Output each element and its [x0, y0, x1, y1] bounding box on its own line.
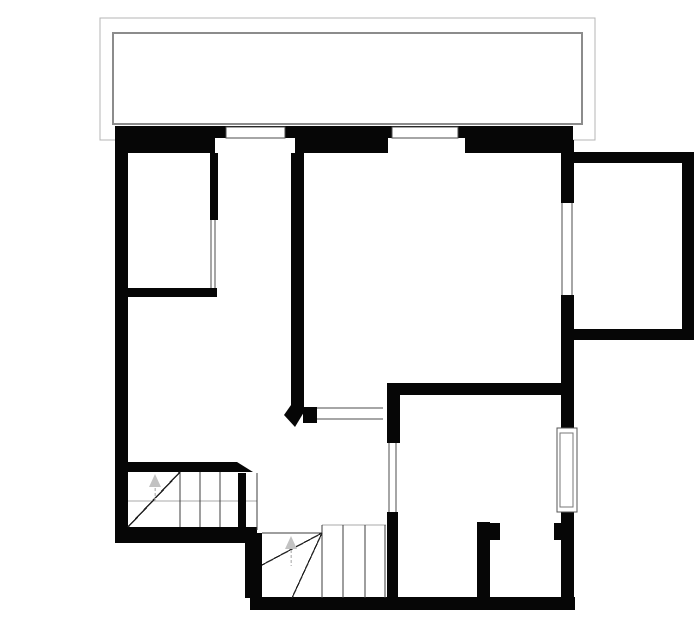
stair-lower-winder-diagonal-2 — [292, 533, 322, 598]
wall-right-upper — [561, 140, 574, 203]
wall-room1-bottom — [128, 288, 217, 297]
wall-roomD-top — [387, 383, 574, 395]
wall-right-lower — [561, 510, 574, 610]
wall-roomD-door-nub-left — [490, 523, 500, 540]
wall-extension-top — [563, 152, 694, 163]
wall-right-middle — [561, 295, 574, 428]
wall-roomD-door-stub — [477, 522, 490, 597]
stair-lower-up-arrow-head — [285, 536, 297, 549]
window-top-1-recess — [215, 138, 295, 153]
window-top-2-frame — [392, 127, 458, 138]
wall-roomD-door-nub-right — [554, 523, 562, 540]
wall-hall-window-cap — [303, 407, 317, 423]
wall-stair-top-chamfer — [237, 462, 253, 472]
floor-plan-canvas — [0, 0, 700, 644]
floor-plan — [0, 0, 700, 644]
wall-extension-right — [682, 152, 694, 340]
wall-stair-newel-bar — [238, 473, 246, 530]
wall-left-exterior — [115, 126, 128, 543]
balcony-outline-inner — [113, 33, 582, 124]
wall-bottom-left — [115, 527, 257, 543]
wall-bottom-right — [250, 597, 575, 610]
wall-central-splayed-end — [284, 405, 304, 427]
wall-top-exterior — [115, 126, 573, 153]
wall-extension-bottom — [563, 329, 694, 340]
wall-roomD-left-lower — [387, 512, 398, 607]
wall-step-vertical — [245, 533, 262, 598]
window-top-1-frame — [226, 127, 285, 138]
window-top-2-recess — [388, 138, 465, 153]
wall-stair-top — [128, 462, 237, 472]
stair-upper-up-arrow-head — [149, 474, 161, 487]
balcony-outline-outer — [100, 18, 595, 140]
wall-central — [291, 140, 304, 407]
